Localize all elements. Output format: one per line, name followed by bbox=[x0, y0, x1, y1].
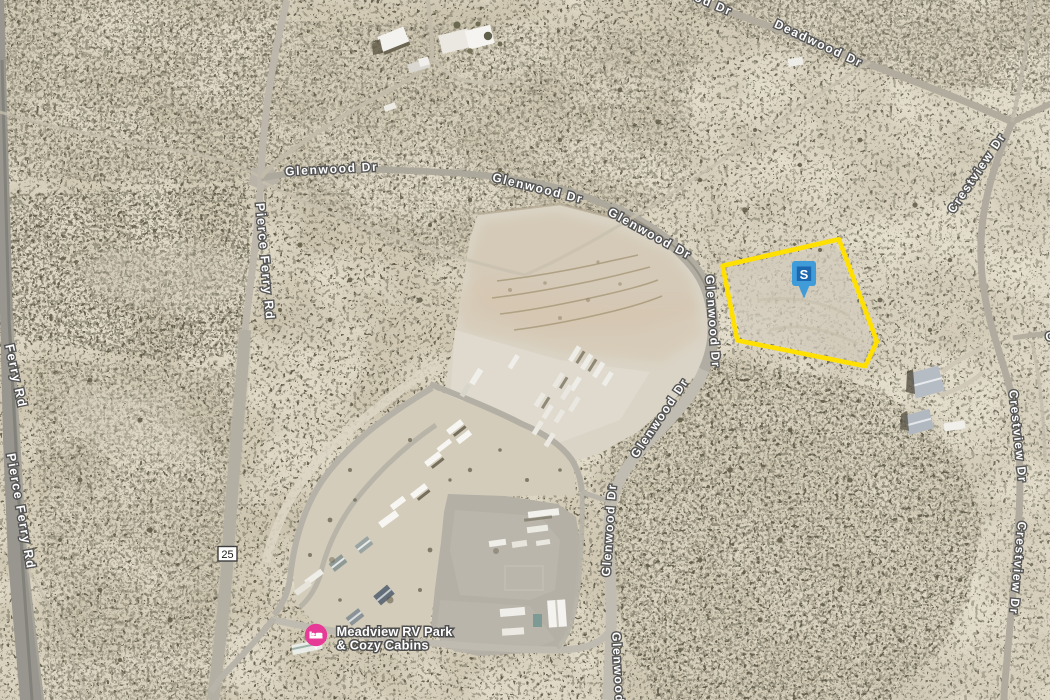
svg-text:25: 25 bbox=[221, 549, 233, 561]
svg-text:& Cozy Cabins: & Cozy Cabins bbox=[337, 638, 429, 653]
svg-text:Cr: Cr bbox=[1044, 328, 1050, 344]
svg-text:S: S bbox=[800, 267, 809, 282]
